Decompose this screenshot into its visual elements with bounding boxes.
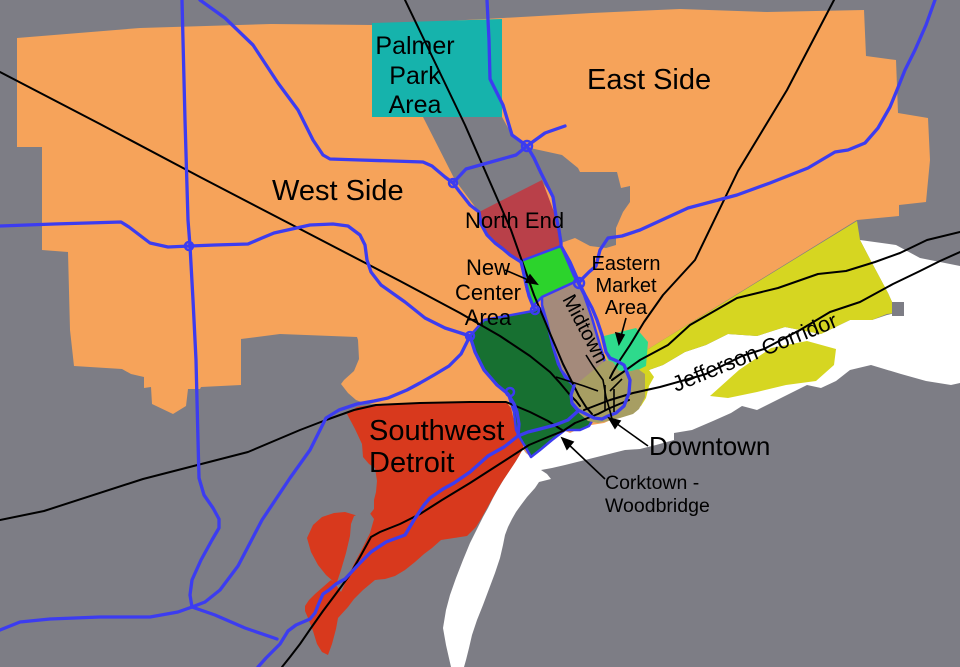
svg-text:Area: Area bbox=[605, 297, 648, 319]
svg-text:Area: Area bbox=[465, 305, 512, 330]
svg-text:Eastern: Eastern bbox=[592, 253, 661, 275]
svg-text:Woodbridge: Woodbridge bbox=[605, 495, 710, 517]
svg-text:Corktown -: Corktown - bbox=[605, 472, 699, 494]
svg-text:West Side: West Side bbox=[272, 175, 404, 207]
svg-text:Center: Center bbox=[455, 280, 521, 305]
svg-text:North End: North End bbox=[465, 208, 564, 233]
svg-text:East Side: East Side bbox=[587, 64, 711, 96]
svg-text:Palmer: Palmer bbox=[375, 32, 454, 60]
svg-text:Market: Market bbox=[595, 275, 657, 297]
svg-text:Downtown: Downtown bbox=[649, 431, 770, 461]
svg-text:Area: Area bbox=[389, 91, 442, 119]
svg-text:Southwest: Southwest bbox=[369, 415, 504, 447]
svg-text:Park: Park bbox=[389, 62, 441, 90]
svg-text:Detroit: Detroit bbox=[369, 447, 454, 479]
svg-text:New: New bbox=[466, 255, 510, 280]
